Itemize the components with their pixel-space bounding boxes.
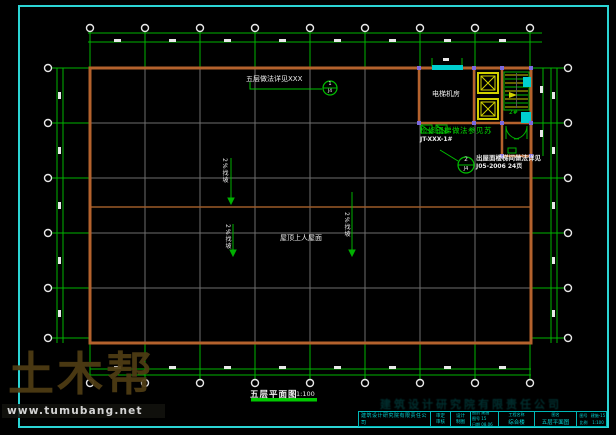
watermark-url: www.tumubang.net	[2, 404, 165, 418]
meta-row: 日期 08.06	[472, 422, 498, 426]
scale-value: 1:100	[590, 420, 606, 425]
slope-label-1: 2%找坡	[221, 158, 227, 184]
titleblock-certs: 审定 审核	[431, 412, 451, 426]
stair-note-line2: J05-2006 24页	[476, 164, 522, 171]
slope-label-2: 2%找坡	[224, 224, 230, 250]
number-label: 图号	[577, 413, 590, 419]
repair-note-label: 检修钢梯做法参见苏	[420, 127, 492, 135]
ghost-stamp-text: 建筑设计研究院有限责任公司	[380, 396, 606, 412]
roof-area-label: 屋顶上人屋面	[280, 235, 322, 243]
interior-grid-lines	[90, 68, 531, 343]
titleblock-project: 工程名称 综合楼	[499, 412, 535, 426]
callout-mid-number: 2	[458, 156, 474, 163]
scale-label: 比例	[577, 420, 590, 426]
titleblock-numbers: 图号 建施-15 比例 1:100	[577, 412, 606, 426]
plan-scale: 1:100	[296, 390, 315, 398]
roof-note-label: 五层做法详见XXX	[246, 76, 302, 84]
watermark-url-bar: www.tumubang.net	[2, 404, 165, 418]
elevator-shafts	[478, 73, 498, 119]
cad-canvas: 五层做法详见XXX 1 J4 电梯机房 2# 检修钢梯做法参见苏 JT-XXX-…	[0, 0, 616, 435]
project-value: 综合楼	[499, 418, 534, 426]
stair-note-line1: 出屋面楼梯间做法详见	[476, 155, 541, 162]
repair-ref-label: JT-XXX-1#	[420, 137, 453, 144]
title-block: 建筑设计研究院有限责任公司 审定 审核 设计 制图 图别 建施 图号 15 日期…	[358, 411, 607, 427]
watermark-brand: 土木帮	[8, 351, 155, 397]
plan-title: 五层平面图	[250, 388, 298, 400]
number-value: 建施-15	[590, 413, 606, 419]
titleblock-company: 建筑设计研究院有限责任公司	[359, 412, 431, 426]
window-strip	[432, 65, 463, 70]
titleblock-drawing: 图名 五层平面图	[535, 412, 577, 426]
callout-top-ref: J4	[323, 89, 337, 94]
stamp-row: 制图	[451, 419, 470, 425]
slope-label-3: 2%找坡	[343, 212, 349, 238]
machine-room-label: 电梯机房	[432, 91, 460, 99]
stair-number-label: 2#	[509, 110, 518, 117]
titleblock-stamps: 设计 制图	[451, 412, 471, 426]
drawing-value: 五层平面图	[535, 418, 576, 426]
titleblock-meta: 图别 建施 图号 15 日期 08.06	[471, 412, 499, 426]
callout-top-number: 1	[323, 81, 337, 87]
cert-row: 审核	[431, 419, 450, 425]
callout-mid-ref: J4	[458, 166, 474, 172]
